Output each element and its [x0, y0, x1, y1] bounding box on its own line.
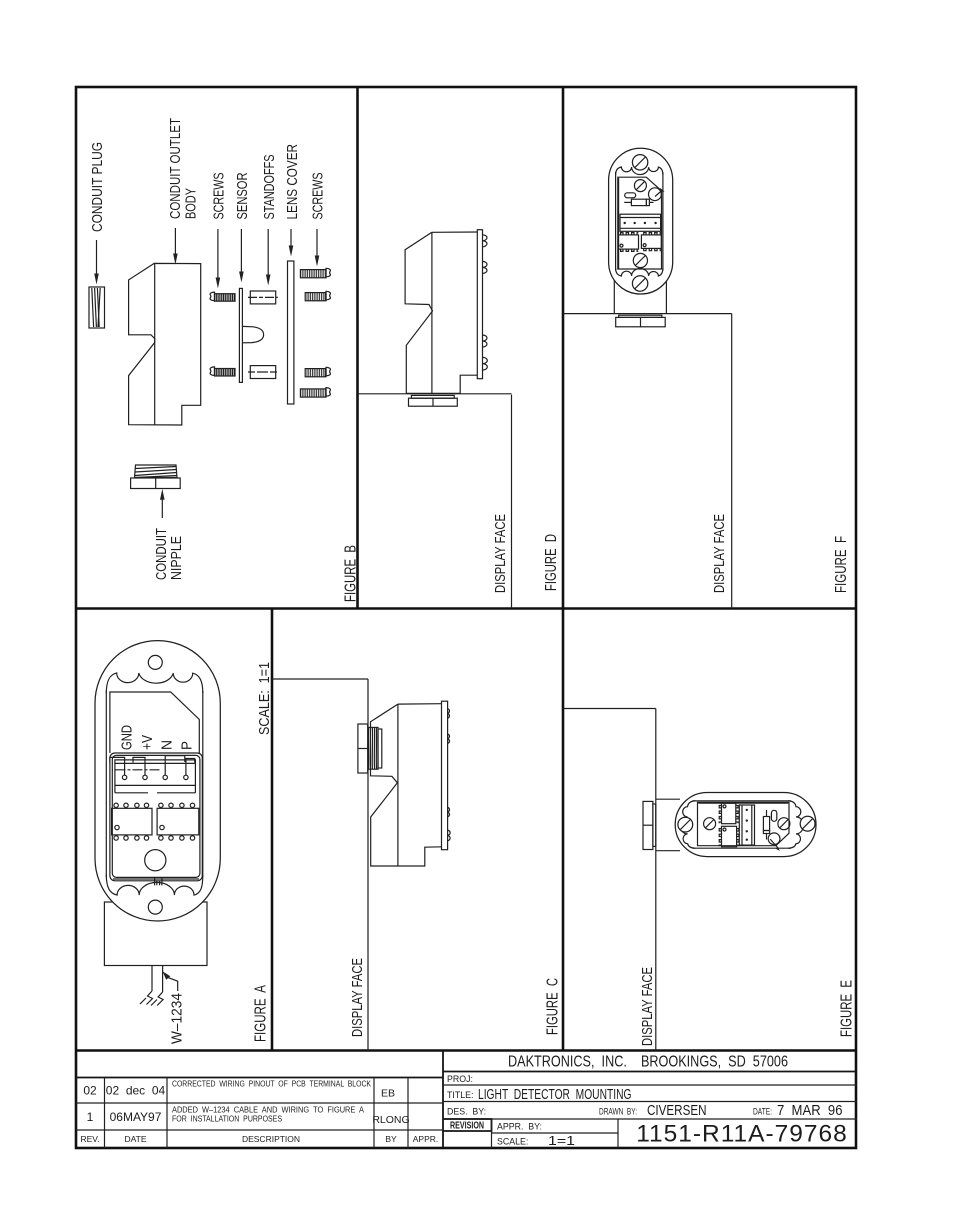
- svg-text:DES. BY:: DES. BY:: [447, 1107, 486, 1117]
- svg-text:DISPLAY FACE: DISPLAY FACE: [350, 958, 366, 1037]
- svg-text:DISPLAY FACE: DISPLAY FACE: [640, 967, 656, 1046]
- svg-text:06MAY97: 06MAY97: [110, 1110, 162, 1124]
- svg-text:FOR INSTALLATION PURPOSES: FOR INSTALLATION PURPOSES: [172, 1115, 282, 1124]
- svg-text:PROJ:: PROJ:: [447, 1074, 473, 1084]
- svg-text:1=1: 1=1: [548, 1133, 575, 1148]
- svg-text:W–1234: W–1234: [170, 993, 186, 1044]
- svg-text:DRAWN BY:: DRAWN BY:: [599, 1107, 637, 1117]
- svg-text:FIGURE D: FIGURE D: [543, 534, 560, 591]
- svg-text:SENSOR: SENSOR: [235, 173, 251, 220]
- svg-text:EB: EB: [381, 1088, 395, 1100]
- svg-text:P: P: [179, 741, 195, 750]
- svg-text:LIGHT DETECTOR MOUNTING: LIGHT DETECTOR MOUNTING: [478, 1086, 632, 1103]
- svg-text:APPR.: APPR.: [413, 1134, 439, 1144]
- svg-text:REVISION: REVISION: [450, 1121, 484, 1132]
- svg-text:DISPLAY FACE: DISPLAY FACE: [712, 514, 728, 593]
- svg-text:CIVERSEN: CIVERSEN: [647, 1102, 707, 1119]
- svg-text:CORRECTED WIRING PINOUT OF: CORRECTED WIRING PINOUT OF PCB TERMINAL …: [172, 1080, 372, 1089]
- svg-text:FIGURE A: FIGURE A: [253, 985, 270, 1042]
- svg-text:02 dec 04: 02 dec 04: [106, 1084, 166, 1098]
- svg-text:SCALE:: SCALE:: [497, 1137, 528, 1147]
- svg-text:ADDED W–1234 CABLE AND WIR: ADDED W–1234 CABLE AND WIRING TO FIGURE …: [172, 1106, 365, 1115]
- svg-text:CONDUIT OUTLET: CONDUIT OUTLET: [168, 118, 184, 219]
- svg-text:FIGURE F: FIGURE F: [833, 536, 850, 593]
- svg-text:FIGURE B: FIGURE B: [343, 545, 360, 602]
- svg-text:STANDOFFS: STANDOFFS: [262, 155, 278, 220]
- svg-text:7 MAR 96: 7 MAR 96: [777, 1102, 843, 1119]
- svg-text:1: 1: [87, 1110, 94, 1124]
- svg-text:DATE:: DATE:: [753, 1107, 772, 1117]
- svg-text:SCREWS: SCREWS: [212, 173, 228, 220]
- svg-text:SCALE: 1=1: SCALE: 1=1: [257, 662, 273, 735]
- svg-text:02: 02: [83, 1084, 97, 1098]
- svg-text:REV.: REV.: [80, 1134, 99, 1144]
- svg-text:APPR. BY:: APPR. BY:: [497, 1122, 542, 1132]
- svg-text:FIGURE E: FIGURE E: [839, 980, 856, 1037]
- svg-text:NIPPLE: NIPPLE: [169, 536, 185, 580]
- svg-text:CONDUIT PLUG: CONDUIT PLUG: [90, 142, 106, 232]
- svg-text:DAKTRONICS, INC. BROOKINGS: DAKTRONICS, INC. BROOKINGS, SD 57006: [508, 1054, 788, 1071]
- svg-text:1151-R11A-79768: 1151-R11A-79768: [636, 1121, 848, 1148]
- svg-text:DATE: DATE: [124, 1134, 146, 1144]
- svg-text:DESCRIPTION: DESCRIPTION: [242, 1134, 300, 1144]
- svg-text:FIGURE C: FIGURE C: [545, 978, 562, 1035]
- svg-text:TITLE:: TITLE:: [447, 1090, 473, 1100]
- svg-text:N: N: [159, 740, 175, 750]
- svg-text:BODY: BODY: [184, 188, 200, 219]
- svg-text:GND: GND: [120, 725, 136, 750]
- svg-text:BY: BY: [385, 1134, 397, 1144]
- svg-text:CONDUIT: CONDUIT: [154, 528, 170, 580]
- svg-text:+V: +V: [140, 735, 156, 750]
- svg-text:LENS COVER: LENS COVER: [285, 144, 301, 220]
- svg-text:DISPLAY FACE: DISPLAY FACE: [493, 514, 509, 593]
- svg-text:RLONG: RLONG: [372, 1114, 409, 1126]
- svg-text:SCREWS: SCREWS: [311, 173, 327, 220]
